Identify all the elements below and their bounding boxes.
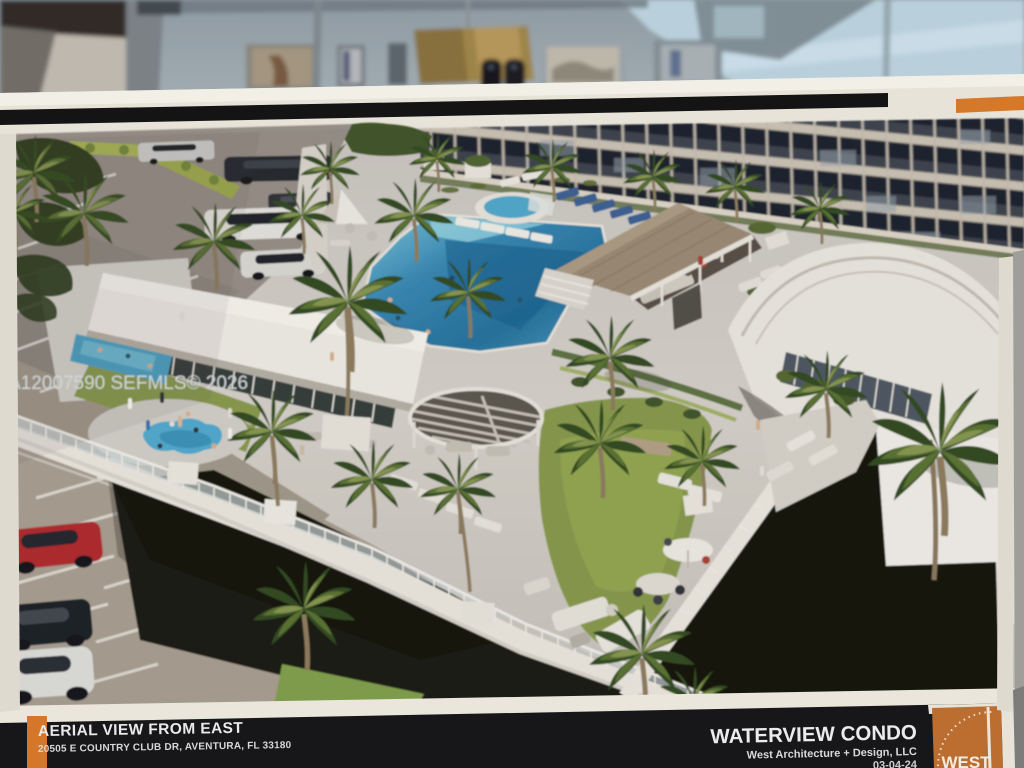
svg-text:A12007590 SEFMLS© 2026: A12007590 SEFMLS© 2026 (8, 373, 248, 394)
svg-text:WEST: WEST (941, 753, 991, 768)
svg-text:03-04-24: 03-04-24 (873, 759, 918, 768)
svg-text:WATERVIEW CONDO: WATERVIEW CONDO (710, 721, 917, 748)
svg-text:AERIAL VIEW FROM EAST: AERIAL VIEW FROM EAST (38, 720, 244, 740)
